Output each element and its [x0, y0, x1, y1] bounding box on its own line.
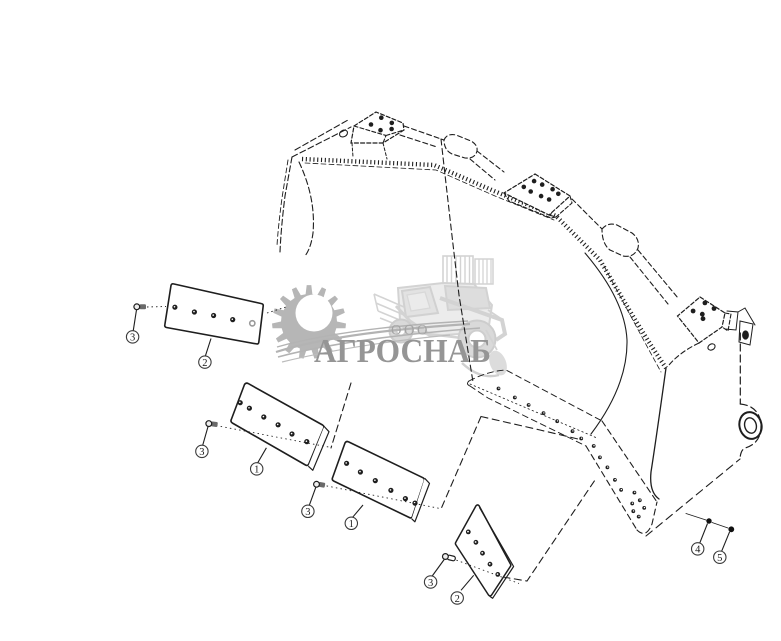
svg-text:3: 3 — [305, 507, 310, 518]
svg-text:4: 4 — [695, 545, 701, 556]
svg-text:5: 5 — [717, 553, 722, 564]
svg-text:2: 2 — [455, 594, 460, 605]
svg-text:3: 3 — [130, 333, 135, 344]
svg-text:2: 2 — [202, 358, 207, 369]
svg-text:АГРОСНАБ: АГРОСНАБ — [314, 333, 491, 370]
svg-text:3: 3 — [428, 578, 433, 589]
svg-text:1: 1 — [254, 465, 259, 476]
svg-text:3: 3 — [199, 447, 204, 458]
svg-text:1: 1 — [349, 519, 354, 530]
